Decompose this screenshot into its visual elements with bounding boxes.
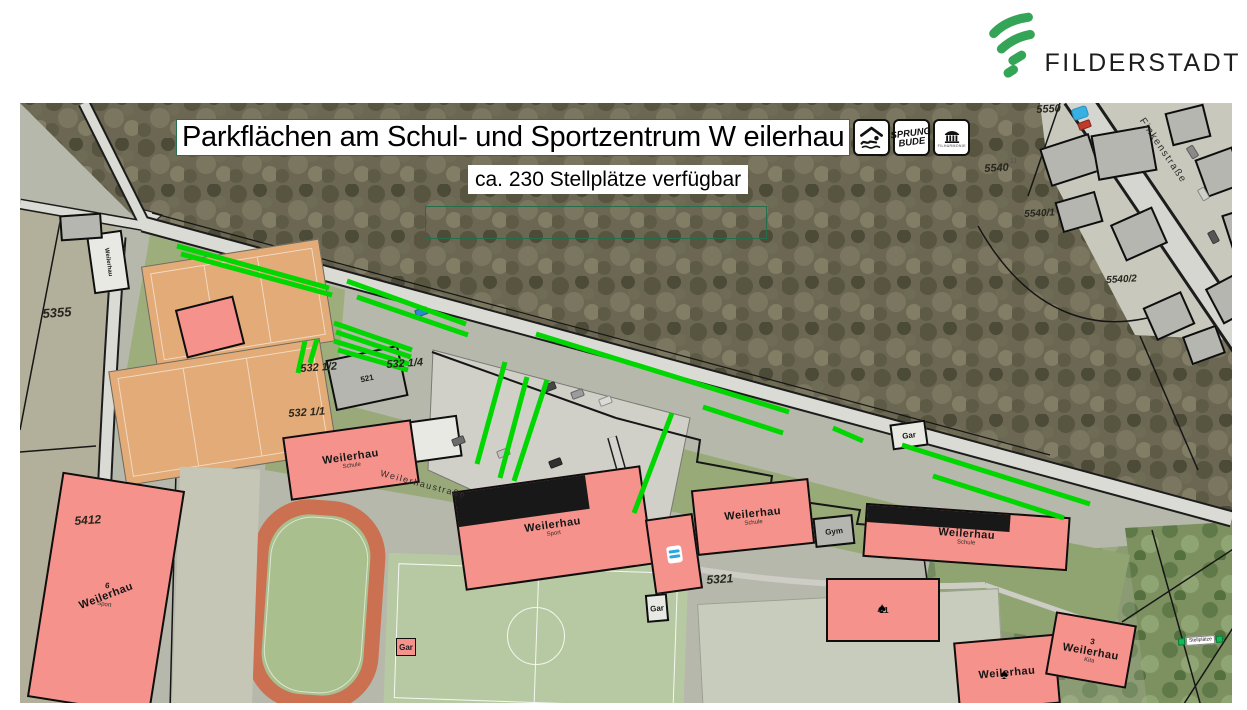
sprungbude-logo: SPRUNG BUDE <box>891 126 934 149</box>
filderstadt-logo-text: FILDERSTADT <box>1045 49 1242 78</box>
street-label: Finkenstraße <box>1137 116 1189 185</box>
map-subtitle: ca. 230 Stellplätze verfügbar <box>468 165 748 194</box>
scale-end-icon <box>1216 635 1223 642</box>
tree-symbol: ♠ <box>1000 666 1008 683</box>
parcel-label: 5550 <box>1036 103 1061 116</box>
filharmonie-badge: FILHARMONIE <box>933 119 970 156</box>
map-title: Parkflächen am Schul- und Sportzentrum W… <box>176 119 850 156</box>
map-title-bar: Parkflächen am Schul- und Sportzentrum W… <box>176 119 970 156</box>
parcel-label: 11 <box>1010 158 1017 165</box>
page: FILDERSTADT <box>0 0 1247 710</box>
street-label: Weilerhaustraße <box>379 468 467 501</box>
parcel-label: 5540/2 <box>1106 273 1137 286</box>
filderstadt-logo-icon <box>987 8 1037 88</box>
parcel-label: 532 1/1 <box>288 405 325 420</box>
sprungbude-line2: BUDE <box>898 136 926 148</box>
filharmonie-caption: FILHARMONIE <box>938 144 966 148</box>
annotation-box <box>425 206 767 239</box>
parcel-label: 5540/1 <box>1024 207 1055 220</box>
columns-icon <box>941 127 963 143</box>
scale-end-icon <box>1178 638 1185 645</box>
sprungbude-badge: SPRUNG BUDE <box>893 119 930 156</box>
map-canvas: Weilerhau521WeilerhauSchuleWeilerhauSpor… <box>20 103 1232 703</box>
parcel-label: 532 1/2 <box>300 360 337 375</box>
parcel-label: 5355 <box>42 304 72 321</box>
parcel-label: 5321 <box>706 571 734 587</box>
filderstadt-logo: FILDERSTADT <box>987 8 1242 88</box>
swimmer-icon <box>858 124 885 151</box>
parcel-label: 532 1/4 <box>386 356 423 371</box>
parcel-label: 5540 <box>984 162 1009 175</box>
parcel-label: 5412 <box>74 512 102 528</box>
tree-symbol: ♠ <box>878 600 886 617</box>
swimming-pool-badge <box>853 119 890 156</box>
